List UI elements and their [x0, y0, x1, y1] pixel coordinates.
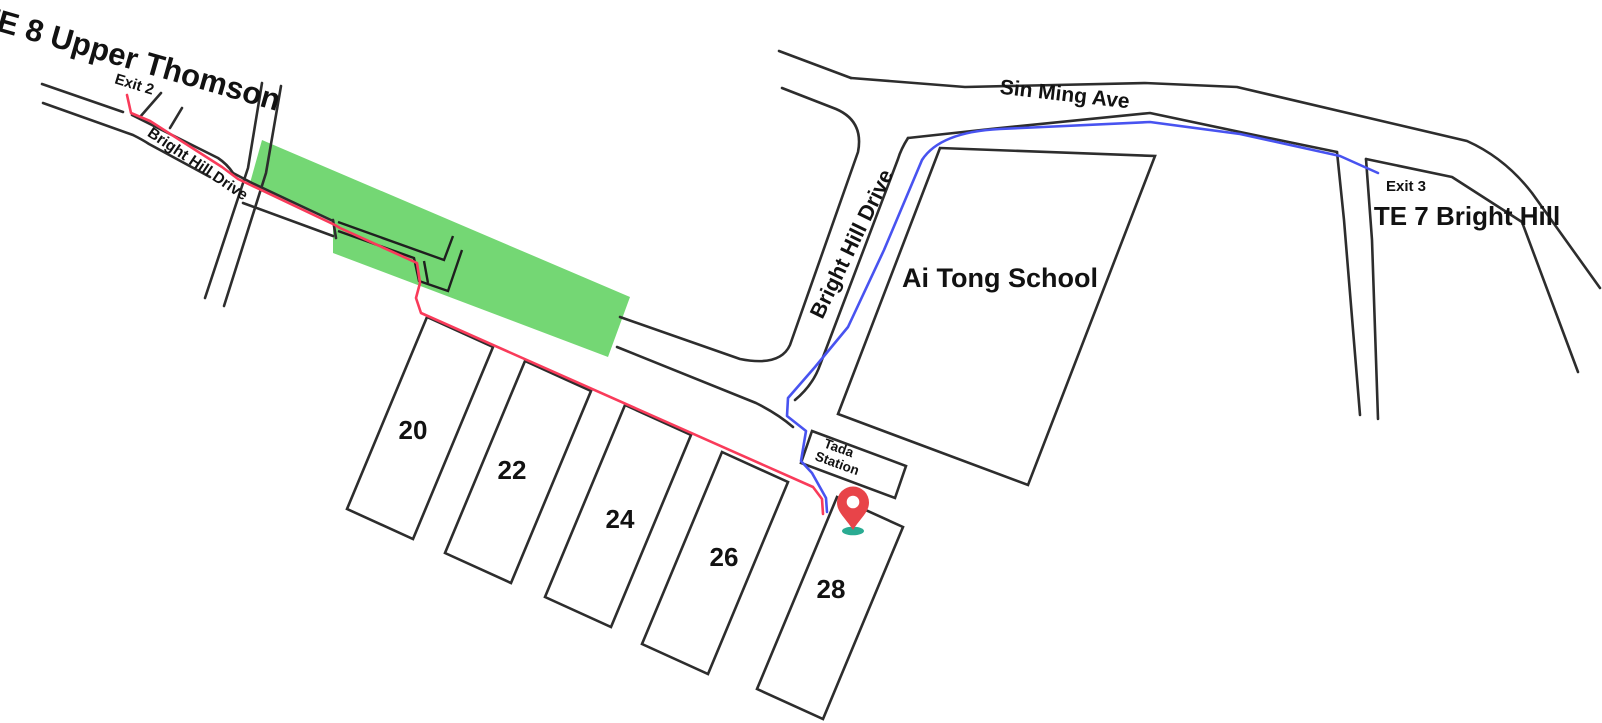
te7-station-label: TE 7 Bright Hill	[1374, 201, 1560, 231]
building-22-label: 22	[498, 455, 527, 485]
road-branch-right-casing	[1366, 159, 1378, 419]
exit2-passage-line-b	[170, 108, 182, 128]
building-20-label: 20	[399, 415, 428, 445]
te8-station-label: TE 8 Upper Thomson	[0, 0, 285, 118]
direction-map: TE 8 Upper Thomson Exit 2 Bright Hill Dr…	[0, 0, 1602, 723]
ai-tong-school-label: Ai Tong School	[902, 263, 1098, 293]
labels: TE 8 Upper Thomson Exit 2 Bright Hill Dr…	[0, 0, 1560, 604]
map-canvas: TE 8 Upper Thomson Exit 2 Bright Hill Dr…	[0, 0, 1602, 723]
location-pin-hole	[847, 496, 860, 509]
building-28	[757, 497, 903, 719]
building-24-label: 24	[606, 504, 635, 534]
sin-ming-ave-label: Sin Ming Ave	[999, 76, 1131, 114]
exit3-label: Exit 3	[1386, 178, 1426, 195]
road-northwest-stub-casing	[779, 51, 851, 78]
road-branch-left-casing	[1337, 152, 1360, 415]
building-28-label: 28	[817, 574, 846, 604]
bright-hill-drive-nw-label: Bright Hill Drive	[144, 124, 251, 204]
building-26-label: 26	[710, 542, 739, 572]
